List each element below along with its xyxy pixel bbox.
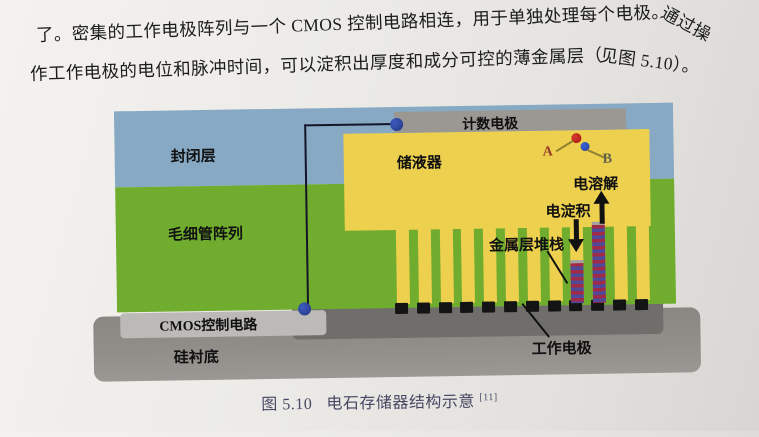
metal-stack-deposition (570, 260, 584, 303)
working-electrode (395, 303, 408, 314)
label-point-a: A (543, 145, 553, 161)
working-electrodes-row (0, 0, 755, 6)
label-silicon-substrate: 硅衬底 (174, 346, 219, 368)
figure-title: 电石存储器结构示意 (326, 394, 475, 413)
capillary-stripe (439, 227, 453, 303)
label-sealing-layer: 封闭层 (170, 145, 215, 167)
working-electrode (504, 301, 517, 312)
book-page-photo: 了。密集的工作电极阵列与一个 CMOS 控制电路相连，用于单独处理每个电极。通过… (0, 0, 759, 431)
working-electrode (417, 302, 430, 313)
working-electrode (460, 302, 473, 313)
capillary-stripe (461, 227, 475, 303)
working-electrode (635, 299, 648, 310)
label-counting-electrode: 计数电极 (462, 113, 518, 134)
label-metal-stack: 金属层堆栈 (489, 233, 564, 255)
capillary-stripe (636, 224, 650, 300)
label-electro-deposition: 电淀积 (545, 200, 590, 222)
arrow-up-dissolution (599, 203, 604, 224)
capillary-stripe (396, 228, 410, 304)
capillary-stripe (418, 227, 432, 303)
figure-number: 图 5.10 (261, 396, 312, 414)
figure-reference: [11] (479, 392, 497, 403)
capillary-stripe (614, 224, 628, 300)
working-electrode (613, 299, 626, 310)
capillary-stripes (0, 0, 755, 6)
working-electrode (482, 301, 495, 312)
arrow-down-deposition (574, 219, 579, 240)
working-electrode (439, 302, 452, 313)
label-reservoir: 储液器 (397, 151, 442, 173)
label-point-b: B (603, 152, 613, 168)
metal-stack-dissolution (592, 222, 606, 303)
label-capillary-array: 毛细管阵列 (168, 222, 243, 244)
working-electrode (548, 300, 561, 311)
arrow-down-head (568, 239, 584, 252)
memory-structure-diagram: A B 封闭层 毛细管阵列 计数电极 储液器 CMOS控制电路 硅衬底 电溶解 … (0, 0, 759, 437)
label-electro-dissolution: 电溶解 (573, 172, 618, 194)
label-working-electrode: 工作电极 (532, 337, 592, 359)
label-cmos-circuit: CMOS控制电路 (159, 314, 257, 336)
